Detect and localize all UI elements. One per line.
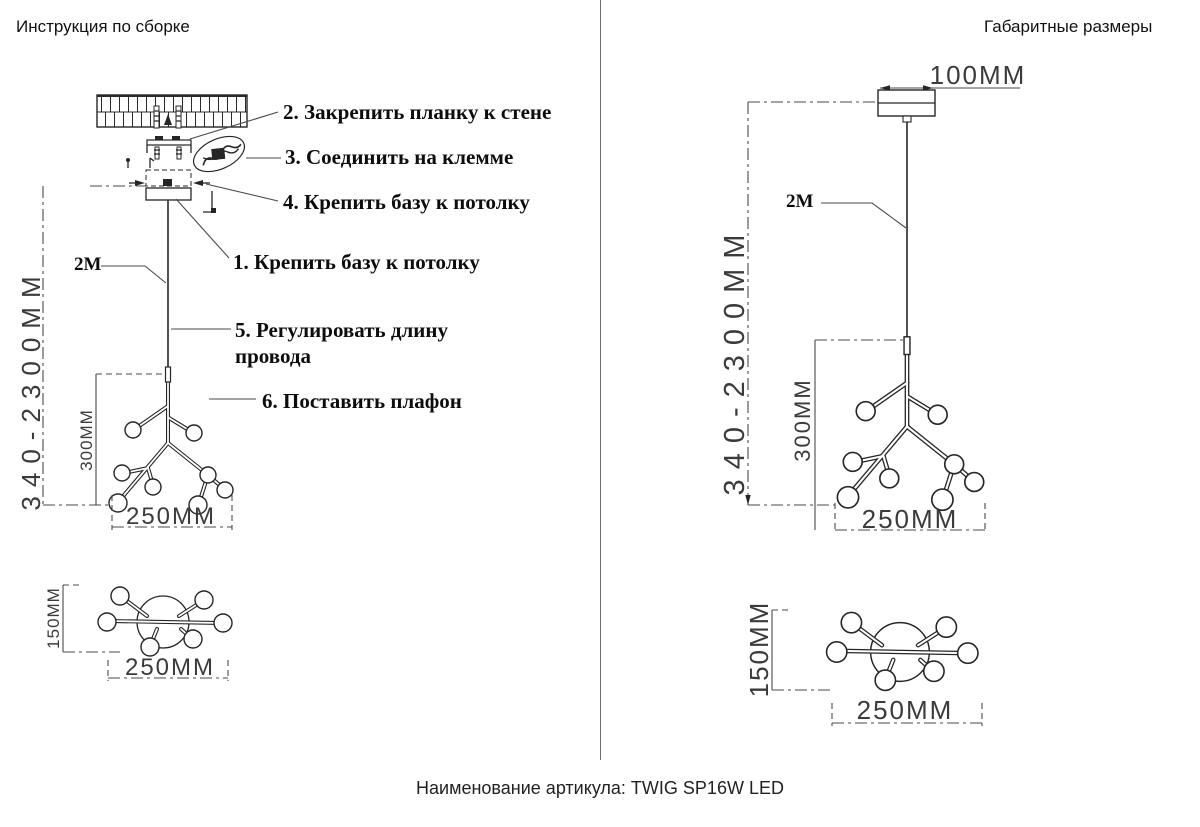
left-panel-title: Инструкция по сборке (16, 17, 190, 37)
step-label-6: 6. Поставить плафон (262, 388, 462, 414)
cord-length-label: 2M (74, 254, 101, 276)
dim-label-body-height: 300MM (790, 378, 815, 461)
dim-label-body-height: 300MM (77, 409, 96, 471)
instruction-sheet: 340-2300MM 300MM 250MM 150MM 250MM 100M (0, 0, 1200, 827)
dim-label-body-width: 250MM (126, 503, 216, 530)
dim-label-height-range: 340-2300MM (719, 225, 751, 496)
dim-label-height-range: 340-2300MM (16, 267, 46, 510)
step-label-5: 5. Регулировать длину провода (235, 317, 490, 370)
dim-label-top-depth: 150MM (744, 601, 774, 698)
step-label-4: 4. Крепить базу к потолку (283, 189, 530, 215)
dim-label-canopy-width: 100MM (930, 60, 1027, 90)
dim-label-body-width: 250MM (862, 504, 959, 534)
dim-label-top-width: 250MM (857, 695, 954, 725)
lamp-side-view (837, 337, 983, 510)
assembly-diagram: 340-2300MM 300MM 250MM 150MM 250MM (16, 95, 281, 681)
step-label-2: 2. Закрепить планку к стене (283, 99, 551, 125)
right-panel-title: Габаритные размеры (984, 17, 1152, 37)
dimensions-diagram: 100MM 34 (719, 60, 1026, 726)
panel-divider (600, 0, 601, 760)
cord-length-label: 2M (786, 191, 813, 213)
step-label-3: 3. Соединить на клемме (285, 144, 513, 170)
wall-hatch (97, 95, 247, 128)
dim-label-top-depth: 150MM (44, 587, 63, 649)
ceiling-canopy (878, 90, 935, 122)
lamp-top-view (827, 612, 978, 690)
cord-leader-line (821, 203, 906, 228)
dim-label-top-width: 250MM (125, 654, 215, 681)
article-caption: Наименование артикула: TWIG SP16W LED (0, 778, 1200, 799)
step-label-1: 1. Крепить базу к потолку (233, 249, 480, 275)
lamp-top-view (98, 587, 232, 656)
lamp-side-view (109, 367, 233, 514)
mounting-bracket (147, 136, 191, 159)
